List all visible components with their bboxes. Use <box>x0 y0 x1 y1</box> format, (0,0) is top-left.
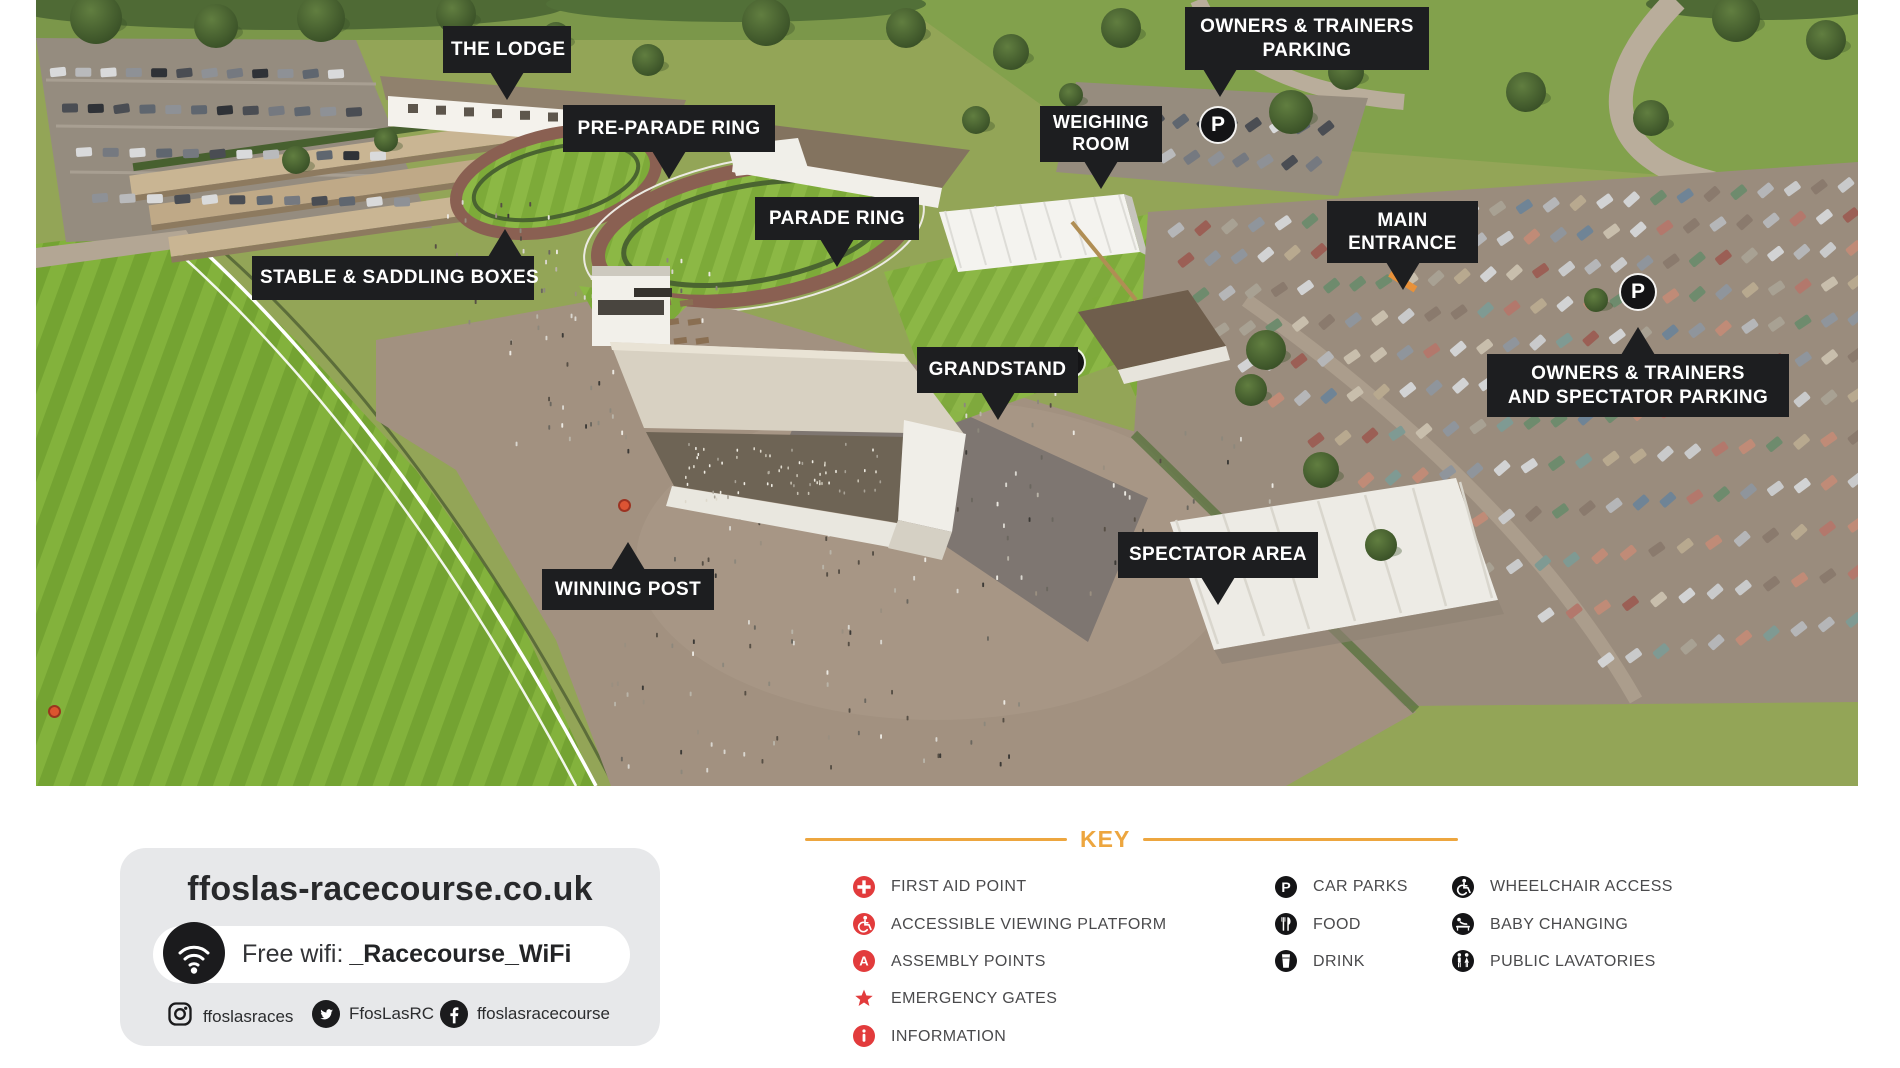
twitter-icon <box>312 1000 340 1028</box>
instagram-icon <box>166 1000 194 1033</box>
svg-text:P: P <box>1281 879 1290 895</box>
key-column-red: FIRST AID POINT ACCESSIBLE VIEWING PLATF… <box>852 868 1166 1055</box>
key-item-accessible-viewing: ACCESSIBLE VIEWING PLATFORM <box>852 905 1166 942</box>
car-park-marker: P <box>1621 275 1655 309</box>
social-facebook[interactable]: ffoslasracecourse <box>440 1000 610 1028</box>
key-item-baby-changing: BABY CHANGING <box>1451 905 1673 942</box>
facebook-handle: ffoslasracecourse <box>477 1004 610 1024</box>
key-column-access: WHEELCHAIR ACCESS BABY CHANGING PUBLIC L… <box>1451 868 1673 980</box>
key-item-emergency-gates: EMERGENCY GATES <box>852 980 1166 1017</box>
food-icon <box>1274 912 1298 936</box>
key-rule-left <box>805 838 1067 841</box>
facebook-icon <box>440 1000 468 1028</box>
callout-stable-saddling-boxes: STABLE & SADDLING BOXES <box>252 256 534 300</box>
callout-winning-post: WINNING POST <box>542 569 714 610</box>
key-title: KEY <box>1080 826 1130 853</box>
callout-grandstand: GRANDSTAND <box>917 347 1078 393</box>
callout-parade-ring: PARADE RING <box>755 197 919 240</box>
public-lavatories-icon <box>1451 949 1475 973</box>
key-rule-right <box>1143 838 1458 841</box>
svg-text:A: A <box>859 954 869 969</box>
website-url[interactable]: ffoslas-racecourse.co.uk <box>120 870 660 909</box>
racecourse-map: THE LODGE PRE-PARADE RING OWNERS & TRAIN… <box>36 0 1858 786</box>
accessible-viewing-icon <box>852 912 876 936</box>
callout-spectator-area: SPECTATOR AREA <box>1118 532 1318 578</box>
key-item-food: FOOD <box>1274 905 1408 942</box>
social-instagram[interactable]: ffoslasraces <box>166 1000 293 1033</box>
emergency-gate-icon <box>852 987 876 1011</box>
twitter-handle: FfosLasRC <box>349 1004 434 1024</box>
key-header: KEY <box>805 826 1458 852</box>
key-item-drink: DRINK <box>1274 943 1408 980</box>
callout-owners-trainers-parking: OWNERS & TRAINERSPARKING <box>1185 7 1429 70</box>
key-item-information: INFORMATION <box>852 1018 1166 1055</box>
info-panel: ffoslas-racecourse.co.uk Free wifi:_Race… <box>120 848 660 1046</box>
information-icon <box>852 1024 876 1048</box>
first-aid-icon <box>852 875 876 899</box>
wheelchair-access-icon <box>1451 875 1475 899</box>
social-twitter[interactable]: FfosLasRC <box>312 1000 434 1028</box>
point-marker <box>618 499 631 512</box>
key-item-first-aid: FIRST AID POINT <box>852 868 1166 905</box>
car-parks-icon: P <box>1274 875 1298 899</box>
key-item-assembly-points: A ASSEMBLY POINTS <box>852 943 1166 980</box>
point-marker <box>48 705 61 718</box>
callout-weighing-room: WEIGHINGROOM <box>1040 106 1162 162</box>
callout-main-entrance: MAINENTRANCE <box>1327 201 1478 263</box>
key-column-facilities: P CAR PARKS FOOD DRINK <box>1274 868 1408 980</box>
assembly-point-icon: A <box>852 949 876 973</box>
instagram-handle: ffoslasraces <box>203 1007 293 1027</box>
callout-the-lodge: THE LODGE <box>443 26 571 73</box>
key-item-wheelchair-access: WHEELCHAIR ACCESS <box>1451 868 1673 905</box>
wifi-info: Free wifi:_Racecourse_WiFi <box>242 926 572 983</box>
wifi-icon <box>163 922 225 984</box>
key-item-public-lavatories: PUBLIC LAVATORIES <box>1451 943 1673 980</box>
baby-changing-icon <box>1451 912 1475 936</box>
key-item-car-parks: P CAR PARKS <box>1274 868 1408 905</box>
callout-owners-trainers-spectator-parking: OWNERS & TRAINERSAND SPECTATOR PARKING <box>1487 354 1789 417</box>
drink-icon <box>1274 949 1298 973</box>
callout-pre-parade-ring: PRE-PARADE RING <box>563 105 775 152</box>
car-park-marker: P <box>1201 108 1235 142</box>
